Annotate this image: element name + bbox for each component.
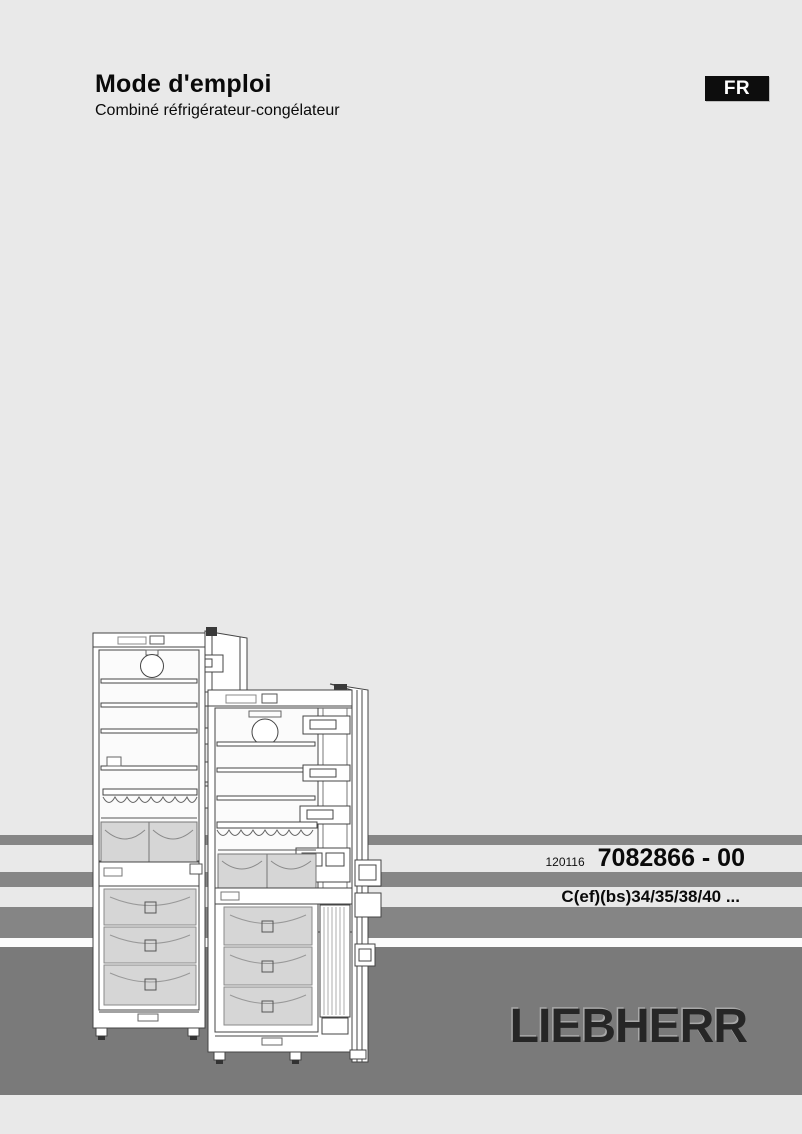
refrigerator-illustration [80, 620, 395, 1072]
part-number-row: 120116 7082866 - 00 [545, 845, 745, 872]
page-subtitle: Combiné réfrigérateur-congélateur [95, 101, 340, 121]
page-title: Mode d'emploi [95, 69, 272, 99]
language-badge: FR [705, 76, 769, 101]
language-badge-label: FR [724, 78, 750, 100]
document-number: 7082866 - 00 [598, 845, 745, 872]
model-line: C(ef)(bs)34/35/38/40 ... [561, 887, 740, 907]
brand-logo: LIEBHERR [510, 1001, 747, 1053]
manual-cover-page: Mode d'emploi Combiné réfrigérateur-cong… [0, 0, 802, 1134]
date-code: 120116 [545, 849, 584, 876]
